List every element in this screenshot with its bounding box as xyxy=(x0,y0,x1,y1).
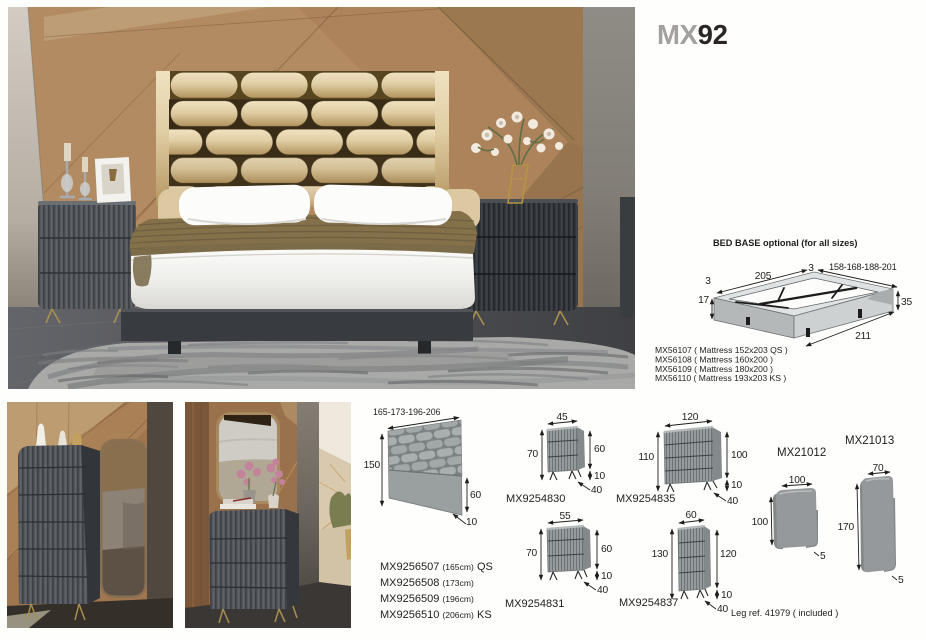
svg-text:100: 100 xyxy=(789,475,806,486)
svg-text:MX9256508 (173cm): MX9256508 (173cm) xyxy=(380,577,474,589)
svg-text:165-173-196-206: 165-173-196-206 xyxy=(373,407,441,417)
svg-text:205: 205 xyxy=(755,271,772,282)
svg-text:35: 35 xyxy=(901,297,912,308)
svg-text:170: 170 xyxy=(838,522,855,533)
svg-text:3: 3 xyxy=(808,263,814,274)
svg-text:100: 100 xyxy=(752,517,769,528)
svg-text:55: 55 xyxy=(560,511,571,522)
svg-text:MX9256507 (165cm) QS: MX9256507 (165cm) QS xyxy=(380,561,493,573)
svg-text:100: 100 xyxy=(731,450,748,461)
svg-text:40: 40 xyxy=(591,485,602,496)
svg-text:10: 10 xyxy=(731,480,742,491)
svg-text:40: 40 xyxy=(727,496,738,507)
svg-text:40: 40 xyxy=(717,604,728,615)
svg-text:MX9254835: MX9254835 xyxy=(616,493,675,505)
svg-text:MX9254831: MX9254831 xyxy=(505,598,564,610)
svg-text:40: 40 xyxy=(597,585,608,596)
svg-text:17: 17 xyxy=(698,295,709,306)
svg-text:BED BASE optional (for all siz: BED BASE optional (for all sizes) xyxy=(713,238,857,248)
svg-text:110: 110 xyxy=(638,452,654,463)
svg-text:60: 60 xyxy=(686,510,697,521)
svg-text:5: 5 xyxy=(898,575,904,586)
svg-text:MX9256510 (206cm) KS: MX9256510 (206cm) KS xyxy=(380,609,492,621)
svg-text:120: 120 xyxy=(720,549,737,560)
svg-text:MX92: MX92 xyxy=(657,19,728,50)
svg-text:130: 130 xyxy=(652,549,669,560)
svg-text:MX9254837: MX9254837 xyxy=(619,597,678,609)
svg-text:MX21013: MX21013 xyxy=(845,435,894,447)
svg-text:150: 150 xyxy=(364,460,381,471)
svg-text:MX21012: MX21012 xyxy=(777,447,826,459)
svg-text:10: 10 xyxy=(601,571,612,582)
svg-text:MX56110 ( Mattress 193x203 KS: MX56110 ( Mattress 193x203 KS ) xyxy=(655,373,786,383)
svg-text:60: 60 xyxy=(594,444,605,455)
svg-text:10: 10 xyxy=(466,517,477,528)
svg-text:60: 60 xyxy=(470,490,481,501)
svg-text:3: 3 xyxy=(705,276,711,287)
svg-text:MX9254830: MX9254830 xyxy=(506,493,565,505)
svg-text:10: 10 xyxy=(721,590,732,601)
svg-text:10: 10 xyxy=(594,471,605,482)
svg-text:211: 211 xyxy=(855,331,871,342)
svg-text:120: 120 xyxy=(682,412,699,423)
svg-text:70: 70 xyxy=(526,548,537,559)
svg-text:158-168-188-201: 158-168-188-201 xyxy=(829,262,897,272)
svg-text:70: 70 xyxy=(527,449,538,460)
svg-text:45: 45 xyxy=(557,412,568,423)
svg-text:60: 60 xyxy=(601,544,612,555)
svg-text:70: 70 xyxy=(873,463,884,474)
svg-text:Leg ref. 41979 ( included ): Leg ref. 41979 ( included ) xyxy=(731,608,838,618)
svg-text:MX9256509 (196cm): MX9256509 (196cm) xyxy=(380,593,474,605)
svg-text:5: 5 xyxy=(820,551,826,562)
